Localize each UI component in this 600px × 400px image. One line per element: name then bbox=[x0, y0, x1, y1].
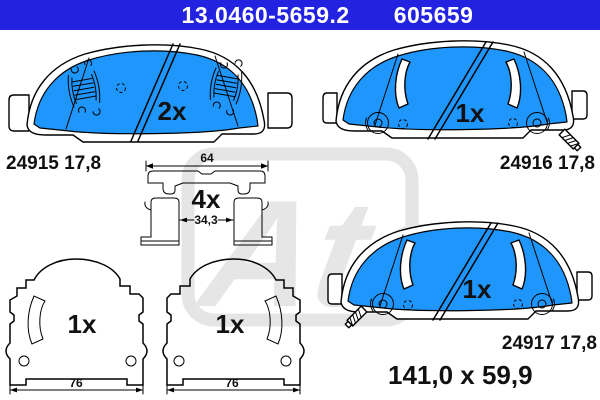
shim-hole bbox=[174, 356, 184, 366]
part-number: 13.0460-5659.2 bbox=[182, 2, 350, 29]
retaining-clip-drawing: 64 4x 34,3 bbox=[138, 150, 318, 258]
quantity-label: 1x bbox=[68, 309, 97, 339]
part-number-24916: 24916 17,8 bbox=[455, 153, 595, 175]
shim-drawing-left: 76 1x bbox=[4, 252, 156, 396]
article-number: 605659 bbox=[394, 2, 474, 29]
quantity-label: 1x bbox=[456, 98, 485, 128]
pad-drawing-24915: 2x bbox=[5, 33, 297, 157]
dim-inner-34-3: 34,3 bbox=[194, 213, 218, 227]
dim-width-64: 64 bbox=[200, 151, 214, 165]
pad-left-ear bbox=[9, 95, 29, 131]
pad-drawing-24917: 1x bbox=[318, 209, 600, 333]
part-number-24915: 24915 17,8 bbox=[6, 153, 101, 175]
header-bar: 13.0460-5659.2 605659 bbox=[0, 0, 600, 30]
pad-right-ear bbox=[268, 93, 292, 128]
pad-left-ear bbox=[323, 93, 337, 123]
wear-sensor-icon bbox=[559, 129, 582, 152]
pad-dimensions-label: 141,0 x 59,9 bbox=[388, 360, 533, 391]
quantity-label: 1x bbox=[216, 309, 245, 339]
pad-left-ear bbox=[328, 274, 342, 304]
shim-slot bbox=[28, 296, 45, 344]
pad-right-ear bbox=[577, 272, 592, 300]
dim-width-76: 76 bbox=[225, 376, 239, 390]
pad-right-ear bbox=[572, 91, 587, 119]
quantity-label: 1x bbox=[463, 274, 492, 304]
shim-hole bbox=[281, 356, 291, 366]
dim-width-76: 76 bbox=[69, 376, 83, 390]
quantity-label: 2x bbox=[158, 96, 187, 126]
shim-drawing-right: 76 1x bbox=[156, 252, 308, 396]
ate-parts-diagram: Ate 13.0460-5659.2 605659 bbox=[0, 0, 600, 400]
shim-hole bbox=[19, 356, 29, 366]
pad-drawing-24916: 1x bbox=[300, 31, 592, 157]
quantity-label: 4x bbox=[192, 184, 221, 214]
shim-hole bbox=[126, 356, 136, 366]
shim-slot bbox=[265, 296, 282, 344]
part-number-24917: 24917 17,8 bbox=[457, 333, 597, 355]
clip-left-leg bbox=[141, 198, 179, 245]
clip-right-leg bbox=[234, 198, 272, 245]
